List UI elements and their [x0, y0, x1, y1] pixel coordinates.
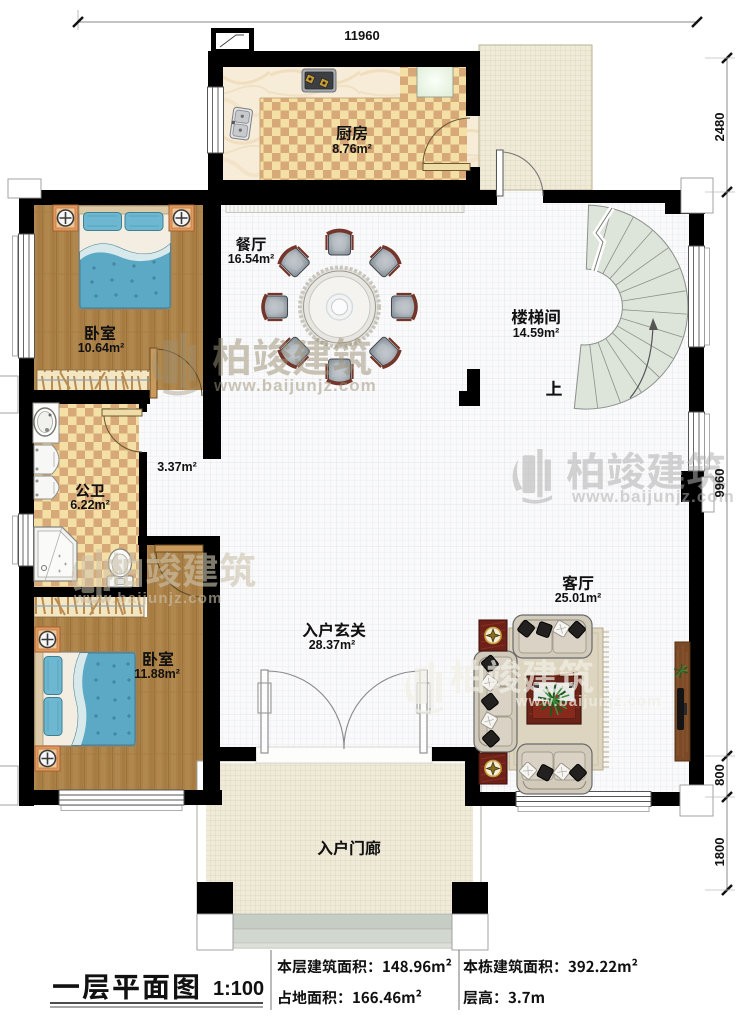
- svg-text:11.88m²: 11.88m²: [134, 667, 180, 681]
- svg-text:8.76m²: 8.76m²: [332, 142, 372, 156]
- svg-text:www.baijunjz.com: www.baijunjz.com: [73, 590, 223, 607]
- svg-text:10.64m²: 10.64m²: [78, 341, 125, 355]
- svg-text:2480: 2480: [712, 113, 727, 142]
- svg-text:800: 800: [712, 764, 727, 786]
- svg-text:14.59m²: 14.59m²: [513, 326, 560, 340]
- svg-text:1800: 1800: [712, 838, 727, 867]
- svg-text:3.37m²: 3.37m²: [157, 460, 197, 474]
- svg-text:1:100: 1:100: [213, 978, 264, 1000]
- svg-text:11960: 11960: [344, 28, 379, 43]
- svg-text:16.54m²: 16.54m²: [228, 252, 275, 266]
- svg-text:www.baijunjz.com: www.baijunjz.com: [213, 376, 377, 395]
- svg-text:25.01m²: 25.01m²: [555, 591, 602, 605]
- svg-text:www.baijunjz.com: www.baijunjz.com: [515, 693, 661, 710]
- svg-text:6.22m²: 6.22m²: [70, 498, 110, 512]
- svg-text:www.baijunjz.com: www.baijunjz.com: [571, 487, 735, 506]
- svg-text:9960: 9960: [712, 469, 727, 498]
- svg-text:28.37m²: 28.37m²: [309, 638, 356, 652]
